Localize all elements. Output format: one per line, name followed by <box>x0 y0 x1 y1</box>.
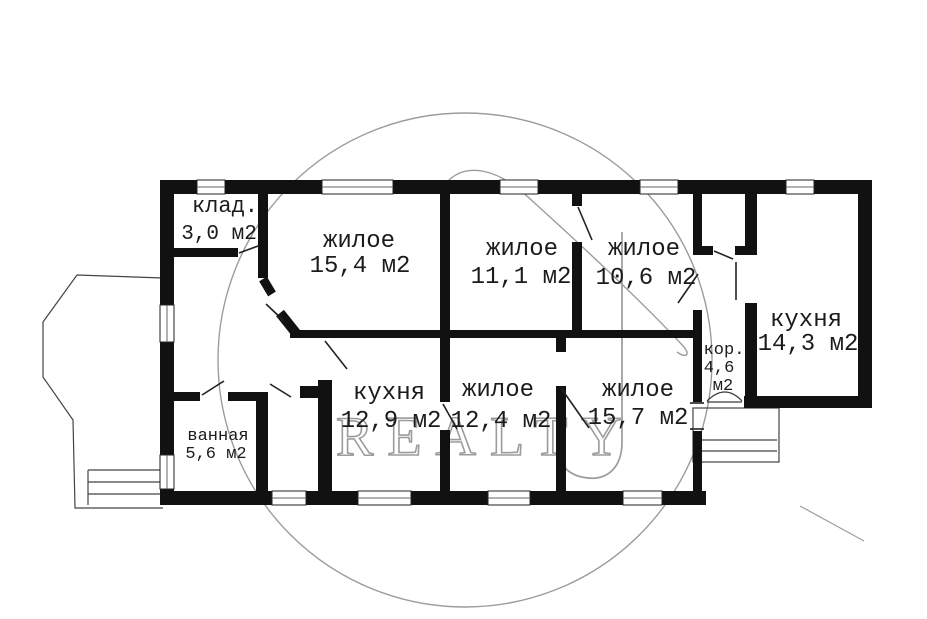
wall-right <box>858 180 872 408</box>
wall-central <box>290 330 697 338</box>
wall-corridor-kitchen143-upper <box>745 194 757 255</box>
wall-kitchen129-living124-lower <box>440 430 450 491</box>
room-label-bathroom: ванная <box>187 427 248 446</box>
floorplan-drawing: REALTY <box>0 0 927 619</box>
room-area-unit-corridor: м2 <box>713 377 733 396</box>
watermark-stroke <box>800 506 864 541</box>
room-area-living-10-6: 10,6 м2 <box>596 265 697 292</box>
wall-bottom-right <box>744 396 872 408</box>
door-leaf-storage <box>239 246 258 253</box>
room-area-corridor: 4,6 <box>704 359 735 378</box>
wall-bathroom-right <box>256 401 268 491</box>
wall-living106-corridor-lower <box>693 310 702 338</box>
wall-living111-living106 <box>572 242 582 330</box>
window <box>500 180 538 194</box>
window <box>358 491 411 505</box>
room-label-living-15-4: жилое <box>323 228 395 255</box>
wall-living106-corridor-upper <box>693 194 702 255</box>
door-leaf-hall <box>270 384 291 397</box>
wall-living157-corridor-upper <box>693 338 702 402</box>
room-area-living-12-4: 12,4 м2 <box>451 408 552 435</box>
room-area-kitchen-12-9: 12,9 м2 <box>341 408 442 435</box>
room-label-kitchen-14-3: кухня <box>770 307 842 334</box>
wall-corridor-kitchen143-lower <box>745 303 757 396</box>
wall-storage-bottom <box>174 248 238 257</box>
wall-storage-right <box>258 194 268 278</box>
wall-bathroom-top-left <box>160 392 200 401</box>
window <box>488 491 530 505</box>
room-label-kitchen-12-9: кухня <box>353 380 425 407</box>
room-label-living-11-1: жилое <box>486 236 558 263</box>
wall-living124-living157-lower <box>556 386 566 491</box>
window <box>160 455 174 489</box>
door-leaf-closet <box>714 251 733 259</box>
room-label-storage: клад. <box>192 194 258 219</box>
room-label-living-15-7: жилое <box>602 377 674 404</box>
wall-hall-stub <box>300 386 318 398</box>
room-area-bathroom: 5,6 м2 <box>185 445 246 464</box>
window <box>623 491 662 505</box>
wall-living111-living106-stub <box>572 194 582 206</box>
room-area-storage: 3,0 м2 <box>181 223 257 246</box>
floorplan-page: REALTY <box>0 0 927 619</box>
wall-chamfer-upper <box>263 279 272 294</box>
window <box>272 491 306 505</box>
window <box>160 305 174 342</box>
window <box>322 180 393 194</box>
door-leaf-living111-living106 <box>578 207 592 240</box>
wall-kitchen129-living124-upper <box>440 338 450 402</box>
door-leaf-kitchen129 <box>325 341 347 369</box>
left-porch-outline <box>43 275 163 508</box>
wall-living157-corridor-lower <box>693 431 702 505</box>
left-porch <box>43 275 163 508</box>
wall-living124-living157-upper <box>556 330 566 352</box>
room-label-corridor: кор. <box>704 341 745 360</box>
window <box>640 180 678 194</box>
window <box>197 180 225 194</box>
wall-kitchen129-left <box>318 380 332 491</box>
room-label-living-12-4: жилое <box>462 377 534 404</box>
wall-closet-shelf-left <box>702 246 713 255</box>
window <box>786 180 814 194</box>
room-area-living-15-4: 15,4 м2 <box>310 253 411 280</box>
room-area-living-11-1: 11,1 м2 <box>471 264 572 291</box>
room-area-living-15-7: 15,7 м2 <box>588 405 689 432</box>
room-label-living-10-6: жилое <box>608 236 680 263</box>
wall-living154-living111 <box>440 194 450 330</box>
wall-bathroom-top-right <box>228 392 268 401</box>
room-area-kitchen-14-3: 14,3 м2 <box>758 331 859 358</box>
